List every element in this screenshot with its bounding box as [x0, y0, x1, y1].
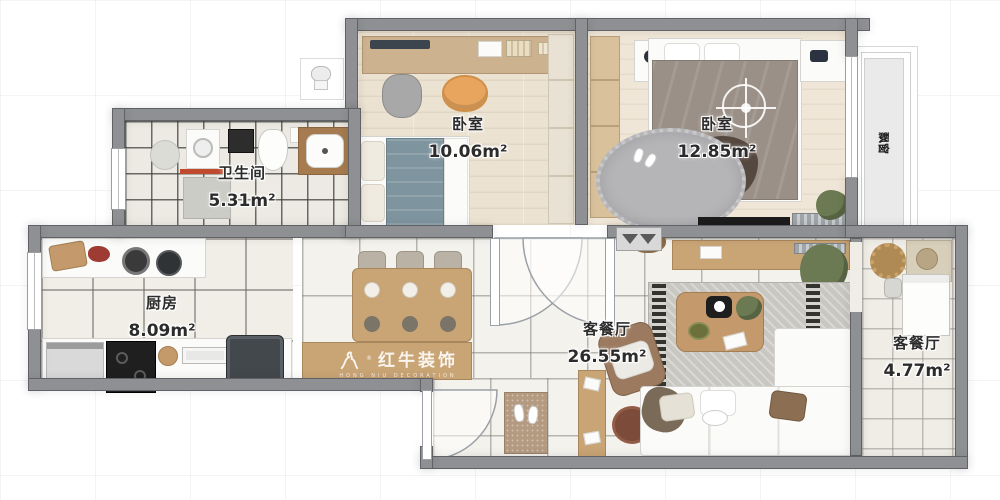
side-room-opening [850, 242, 862, 312]
room-label-living-dining[interactable]: 客餐厅 26.55m² [547, 318, 667, 367]
room-name: 卧室 [408, 113, 528, 134]
room-label-kitchen[interactable]: 厨房 8.09m² [102, 292, 222, 341]
sofa-pillow-brown [768, 390, 808, 423]
tray-dot [714, 301, 725, 312]
wall-bedroom1-left [345, 18, 358, 121]
registered-mark: ® [366, 355, 372, 362]
room-area: 5.31m² [182, 191, 302, 211]
room-name: 客餐厅 [862, 332, 972, 353]
room-name: 客餐厅 [547, 318, 667, 339]
room-label-side-room[interactable]: 客餐厅 4.77m² [862, 332, 972, 381]
room-name: 卧室 [657, 113, 777, 134]
bath-cabinet-dark [228, 129, 254, 153]
pot [122, 247, 150, 275]
monitor [370, 40, 430, 49]
entry-chevron-icon [622, 234, 638, 244]
entry-niche [616, 227, 662, 251]
place-setting-3 [440, 282, 456, 298]
bed-1-pillow-2 [361, 184, 385, 222]
door-leaf-right [605, 238, 615, 326]
room-label-bathroom[interactable]: 卫生间 5.31m² [182, 162, 302, 211]
brand-name: 红牛装饰 [378, 346, 458, 371]
brand-logo-icon [338, 347, 360, 371]
wall-kitchen-bottom [28, 378, 433, 391]
doormat [504, 392, 548, 454]
entry-chevron-icon-2 [640, 234, 656, 244]
sofa-pillow [658, 392, 695, 422]
washing-machine-drum [193, 138, 213, 158]
room-area: 4.77m² [862, 361, 972, 381]
shower-drain-rug [150, 140, 180, 170]
wall-bedroom2-right-upper [845, 18, 858, 60]
nightstand-right-decor [810, 50, 828, 62]
room-area: 26.55m² [547, 347, 667, 367]
fruit-bowl [688, 322, 710, 340]
pot-2 [156, 250, 182, 276]
wardrobe-bedroom-1 [548, 34, 574, 224]
bowl-2 [402, 316, 418, 332]
bay-window-label: 飘窗 [866, 118, 902, 168]
toilet-tank-icon [314, 80, 328, 90]
room-name: 卫生间 [182, 162, 302, 183]
utensil-jar [158, 346, 178, 366]
room-area: 12.85m² [657, 142, 777, 162]
wall-bathroom-bottom [28, 225, 358, 238]
console-decor [700, 246, 722, 259]
side-room-appliance [902, 274, 950, 336]
wall-top [345, 18, 870, 31]
faucet [322, 148, 328, 154]
room-area: 8.09m² [102, 321, 222, 341]
brand-watermark: ® 红牛装饰 HONG NIU DECORATION [318, 346, 478, 379]
place-setting-2 [402, 282, 418, 298]
bowl-3 [440, 316, 456, 332]
wall-bathroom-bedroom-divider [348, 108, 361, 238]
room-name: 厨房 [102, 292, 222, 313]
wall-living-top-left [345, 225, 493, 238]
books [506, 40, 532, 57]
kitchen-window [27, 252, 42, 330]
wall-side-room-top [845, 225, 968, 238]
desk-papers [478, 41, 502, 57]
woven-rug [870, 243, 906, 279]
side-room-table-decor [916, 248, 938, 270]
entry-door-leaf [422, 390, 432, 460]
food-items [88, 246, 110, 262]
brand-tagline: HONG NIU DECORATION [318, 373, 478, 379]
orange-lounge-chair [442, 75, 488, 112]
bed-1-pillow [361, 141, 385, 181]
room-label-bedroom-2[interactable]: 卧室 12.85m² [657, 113, 777, 162]
office-chair [382, 74, 422, 118]
floorplan-canvas: 飘窗 [0, 0, 1000, 500]
place-setting [364, 282, 380, 298]
bathroom-window [111, 148, 126, 210]
bowl [364, 316, 380, 332]
room-area: 10.06m² [408, 142, 528, 162]
wall-bedrooms-divider [575, 18, 588, 225]
side-room-chair [884, 278, 902, 298]
burner [116, 352, 128, 364]
wall-bottom [420, 456, 968, 469]
kitchen-sink [182, 347, 228, 364]
door-leaf-left [490, 238, 500, 326]
sofa-bowl [702, 410, 728, 426]
room-label-bedroom-1[interactable]: 卧室 10.06m² [408, 113, 528, 162]
wall-bathroom-top [112, 108, 358, 121]
bedroom2-bay-window [845, 56, 858, 178]
